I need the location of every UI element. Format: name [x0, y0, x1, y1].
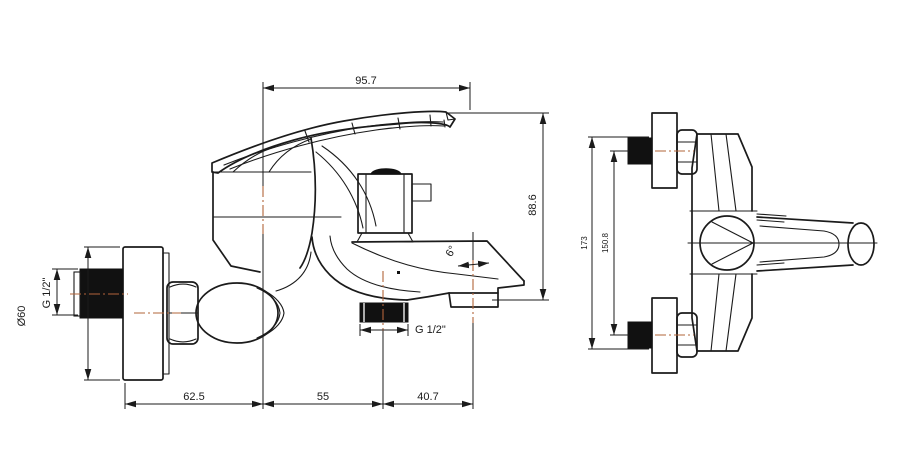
mixer-body	[213, 138, 376, 272]
spout-tip-step	[498, 281, 524, 293]
shower-outlet-thread	[360, 303, 408, 322]
diverter-knob	[357, 169, 431, 242]
dim-outlet-label: G 1/2"	[415, 324, 446, 336]
front-top-thread	[628, 138, 652, 164]
outlet-thread-block	[360, 303, 408, 322]
front-bottom-thread	[628, 322, 652, 348]
dim-flange-label: Ø60	[16, 306, 28, 327]
dim-height: 88.6	[446, 113, 549, 300]
spout	[312, 236, 524, 307]
handle-segment-ticks	[305, 115, 431, 142]
dim-top-width-label: 95.7	[355, 75, 376, 87]
front-cone-end	[848, 223, 874, 265]
handle-blade-outline	[212, 111, 455, 173]
diverter-side-button	[412, 184, 431, 201]
front-body-bottom	[697, 274, 752, 351]
body-transition-curves	[316, 146, 376, 228]
spout-inner-curve	[352, 243, 498, 279]
front-spout-cone	[757, 217, 874, 271]
diverter-skirt	[357, 233, 413, 242]
side-view: 95.7 88.6 Ø60 G 1/2"	[16, 75, 549, 409]
wall-mount	[74, 247, 311, 380]
spout-bottom-edge	[407, 293, 449, 300]
dim-wall-thread-label: G 1/2"	[41, 278, 53, 309]
centerlines-left-view	[70, 82, 473, 409]
dim-front-overall-label: 173	[580, 236, 589, 250]
body-right-curve	[300, 138, 315, 268]
front-view: 173 150.8	[580, 113, 877, 373]
front-body-top	[697, 134, 752, 211]
dim-seg-flange-label: 62.5	[183, 391, 204, 403]
front-cone-inner	[760, 226, 839, 262]
diverter-panel-lines	[366, 174, 404, 233]
dim-height-label: 88.6	[527, 194, 539, 215]
reference-dot	[397, 271, 400, 274]
dim-wall-thread: G 1/2"	[41, 269, 78, 315]
dim-spout-angle: 6°	[444, 244, 489, 266]
dim-front-centers: 150.8	[601, 151, 629, 335]
dim-front-centers-label: 150.8	[601, 232, 610, 253]
dim-angle-label: 6°	[444, 244, 460, 259]
bath-mixer-drawing: 95.7 88.6 Ø60 G 1/2"	[0, 0, 897, 464]
eccentric-union-arcs	[257, 288, 284, 338]
dim-seg-body-label: 55	[317, 391, 329, 403]
spout-top-edge	[352, 241, 524, 281]
dim-bottom-chain: 62.5 55 40.7	[125, 383, 473, 409]
diverter-top-cap	[371, 169, 401, 174]
dim-seg-spout-label: 40.7	[417, 391, 438, 403]
dim-top-width: 95.7	[263, 75, 470, 110]
lever-handle	[212, 111, 455, 173]
body-left-edge	[213, 172, 260, 272]
dim-outlet-thread: G 1/2"	[360, 324, 446, 336]
technical-drawing-sheet: 95.7 88.6 Ø60 G 1/2"	[0, 0, 897, 464]
